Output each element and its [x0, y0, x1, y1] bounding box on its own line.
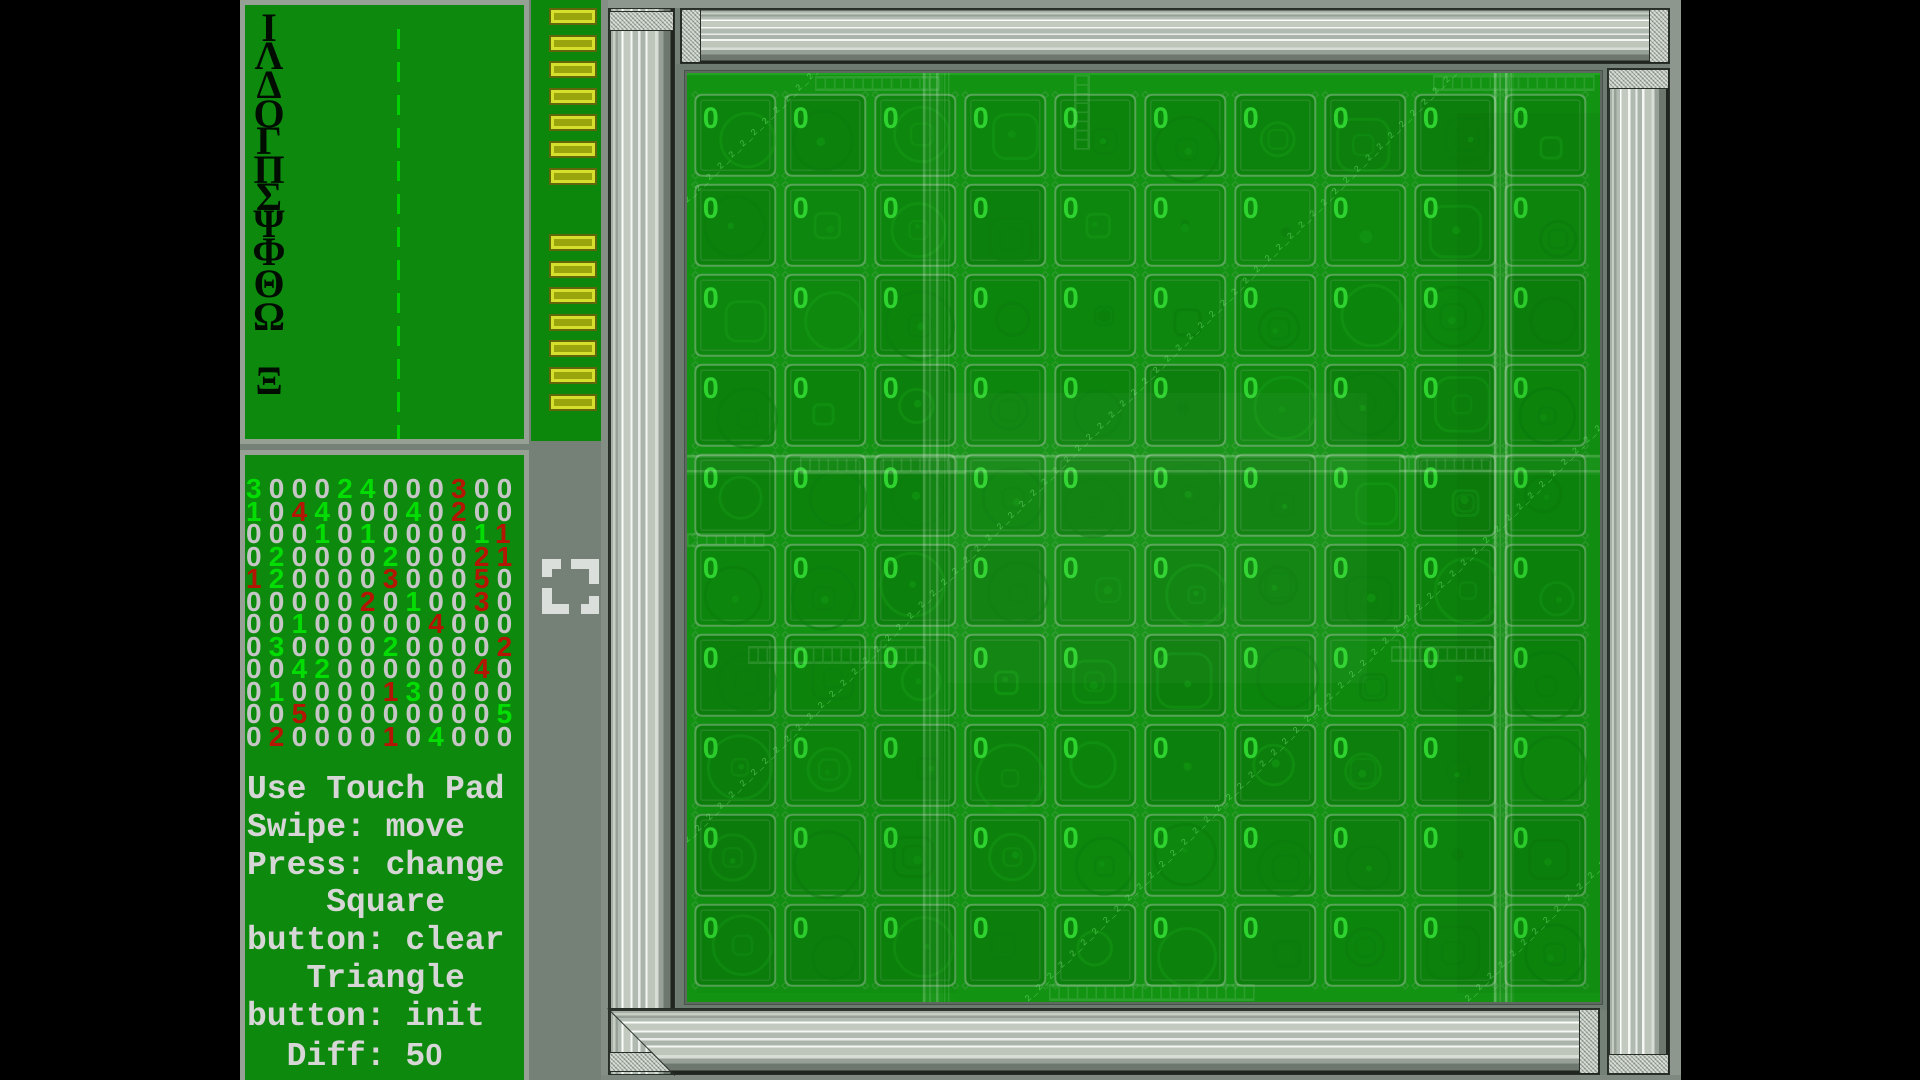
svg-text:0: 0	[1153, 732, 1169, 765]
svg-text:0: 0	[1153, 282, 1169, 315]
svg-text:0: 0	[973, 912, 989, 945]
svg-text:0: 0	[973, 822, 989, 855]
svg-text:0: 0	[1153, 912, 1169, 945]
svg-text:0: 0	[793, 552, 809, 585]
svg-text:0: 0	[883, 102, 899, 135]
svg-text:0: 0	[1423, 192, 1439, 225]
svg-text:0: 0	[1243, 822, 1259, 855]
svg-text:0: 0	[793, 192, 809, 225]
svg-text:0: 0	[703, 552, 719, 585]
svg-text:0: 0	[1423, 732, 1439, 765]
svg-text:0: 0	[973, 192, 989, 225]
svg-text:0: 0	[1063, 732, 1079, 765]
svg-text:0: 0	[1063, 192, 1079, 225]
svg-text:0: 0	[1423, 552, 1439, 585]
svg-text:0: 0	[973, 102, 989, 135]
svg-text:0: 0	[1333, 912, 1349, 945]
svg-text:0: 0	[973, 282, 989, 315]
svg-text:0: 0	[793, 102, 809, 135]
svg-text:0: 0	[1243, 102, 1259, 135]
svg-text:0: 0	[793, 282, 809, 315]
svg-text:0: 0	[1423, 912, 1439, 945]
svg-text:0: 0	[1423, 372, 1439, 405]
svg-text:0: 0	[703, 372, 719, 405]
svg-text:0: 0	[1063, 822, 1079, 855]
svg-text:0: 0	[1153, 192, 1169, 225]
svg-text:0: 0	[1153, 822, 1169, 855]
svg-text:0: 0	[1243, 732, 1259, 765]
svg-text:0: 0	[703, 192, 719, 225]
svg-text:0: 0	[1063, 912, 1079, 945]
svg-text:0: 0	[1153, 102, 1169, 135]
svg-text:0: 0	[703, 642, 719, 675]
svg-text:0: 0	[1063, 282, 1079, 315]
svg-text:0: 0	[793, 372, 809, 405]
svg-text:0: 0	[703, 102, 719, 135]
svg-text:0: 0	[1333, 282, 1349, 315]
svg-text:0: 0	[1333, 732, 1349, 765]
svg-text:0: 0	[883, 282, 899, 315]
svg-text:0: 0	[883, 552, 899, 585]
svg-text:0: 0	[883, 192, 899, 225]
svg-text:0: 0	[1333, 102, 1349, 135]
svg-text:0: 0	[883, 372, 899, 405]
svg-text:0: 0	[1423, 282, 1439, 315]
svg-text:0: 0	[1333, 822, 1349, 855]
svg-text:0: 0	[703, 282, 719, 315]
svg-text:0: 0	[1423, 822, 1439, 855]
svg-text:0: 0	[1243, 192, 1259, 225]
svg-text:0: 0	[973, 732, 989, 765]
svg-text:0: 0	[1243, 912, 1259, 945]
